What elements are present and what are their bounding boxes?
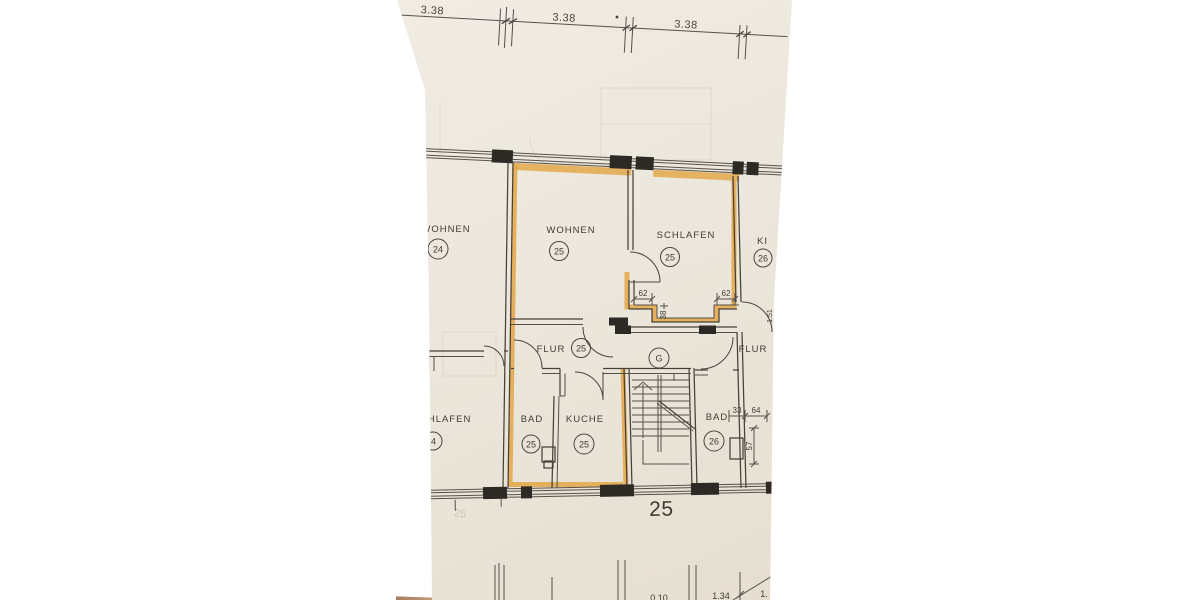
dim-bad26-height: 57	[745, 441, 754, 450]
unit-number-kind-26: 26	[758, 254, 768, 264]
unit-number-bad-26: 26	[709, 437, 719, 447]
dim-bad26-a: 33	[733, 406, 742, 415]
screenshot-canvas: 25 3.38 3	[0, 0, 1200, 600]
bottom-exterior-wall: 25	[410, 481, 793, 525]
dim-338-2: 3.38	[552, 12, 576, 25]
floor-plan-drawing: 25 3.38 3	[396, 0, 794, 600]
dim-niche-left: 62	[639, 289, 648, 298]
room-label-schlafen-left: SCHLAFEN	[413, 414, 472, 425]
room-label-bad-25: BAD	[521, 414, 544, 425]
room-label-kueche-25: KUCHE	[566, 414, 604, 425]
room-label-flur-25: FLUR	[537, 344, 566, 355]
dim-338-1: 3.38	[420, 4, 444, 17]
stray-dot	[616, 16, 619, 19]
dim-bottom-134: 1.34	[712, 591, 730, 600]
top-exterior-wall	[423, 146, 792, 184]
room-label-wohnen-24: WOHNEN	[421, 224, 470, 235]
unit-number-24: 24	[433, 245, 443, 255]
room-label-flur-right: FLUR	[739, 344, 768, 355]
dim-bottom-partial-left: 0.10	[650, 593, 668, 600]
floor-plan-photo: 25 3.38 3	[396, 0, 794, 600]
dim-bottom-partial-right: 1.	[760, 589, 768, 599]
unit-number-wohnen-25: 25	[554, 247, 564, 257]
stairwell-label: G	[655, 354, 662, 364]
room-labels: WOHNEN 24 WOHNEN 25 SCHLAFEN 25 KI 26 FL…	[413, 224, 772, 454]
bottom-dimension-line: 0.10 1.34 1.	[495, 560, 772, 600]
top-dimension-line: 3.38 3.38 3.38	[396, 0, 788, 63]
room-label-schlafen-25: SCHLAFEN	[657, 230, 716, 241]
unit-number-schlafen-25: 25	[665, 253, 675, 263]
unit-number-schlafen-left: 24	[426, 437, 436, 447]
unit-number-bad-25: 25	[526, 440, 536, 450]
room-label-bad-26: BAD	[706, 412, 729, 423]
dim-bad26-b: 64	[752, 406, 761, 415]
dim-door-right: 1.51	[767, 309, 774, 323]
unit-number-kueche-25: 25	[579, 440, 589, 450]
table-edge-sliver	[396, 594, 438, 600]
ghost-lines: 25	[440, 88, 711, 521]
room-label-wohnen-25: WOHNEN	[546, 225, 595, 236]
dim-niche-depth: 38	[659, 310, 668, 319]
dim-338-3: 3.38	[674, 18, 698, 31]
unit-number-flur-25: 25	[576, 344, 586, 354]
dim-niche-right: 62	[722, 289, 731, 298]
room-label-kind-26: KI	[757, 236, 768, 247]
house-number: 25	[649, 498, 674, 521]
stairs	[632, 374, 695, 464]
